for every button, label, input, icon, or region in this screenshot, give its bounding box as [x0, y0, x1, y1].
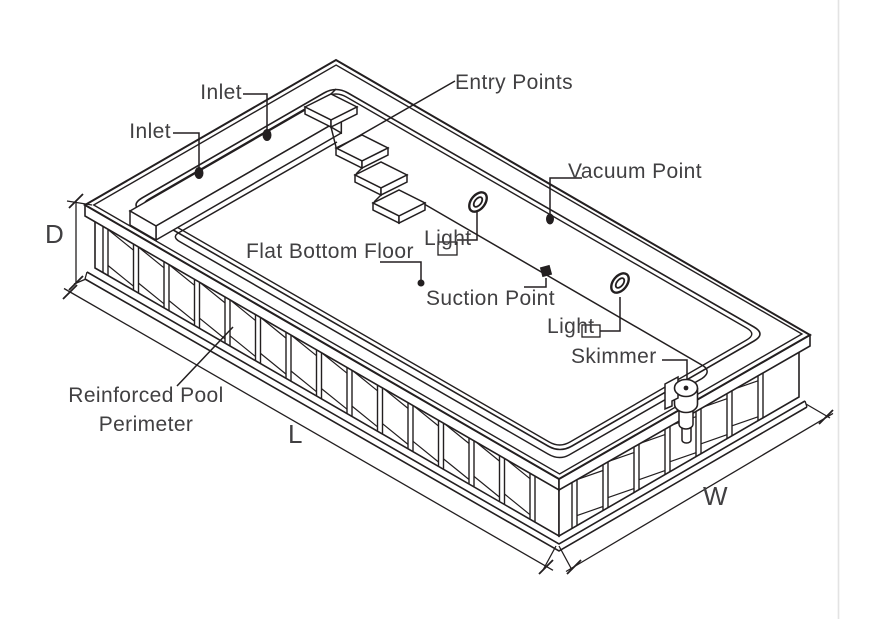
- label-flat-bottom-floor: Flat Bottom Floor: [246, 240, 414, 263]
- label-light-upper: Light: [424, 227, 472, 250]
- page: Inlet Inlet Entry Points Vacuum Point Fl…: [0, 0, 870, 619]
- label-light-lower: Light: [547, 315, 595, 338]
- inlet-marker-side: [195, 167, 204, 179]
- label-inlet-side: Inlet: [129, 120, 171, 143]
- inlet-marker-top: [263, 129, 272, 141]
- label-suction-point: Suction Point: [426, 287, 555, 310]
- floor-marker-dot: [418, 280, 425, 287]
- label-dim-depth: D: [45, 219, 64, 249]
- label-reinforced-line1: Reinforced Pool: [68, 384, 223, 407]
- pool-diagram: Inlet Inlet Entry Points Vacuum Point Fl…: [0, 0, 870, 619]
- label-vacuum-point: Vacuum Point: [568, 160, 702, 183]
- vacuum-point-marker: [546, 214, 554, 225]
- label-inlet-top: Inlet: [200, 81, 242, 104]
- label-entry-points: Entry Points: [455, 71, 573, 94]
- label-dim-length: L: [288, 419, 303, 449]
- label-skimmer: Skimmer: [571, 345, 657, 368]
- label-reinforced-line2: Perimeter: [99, 413, 194, 436]
- label-dim-width: W: [703, 481, 728, 511]
